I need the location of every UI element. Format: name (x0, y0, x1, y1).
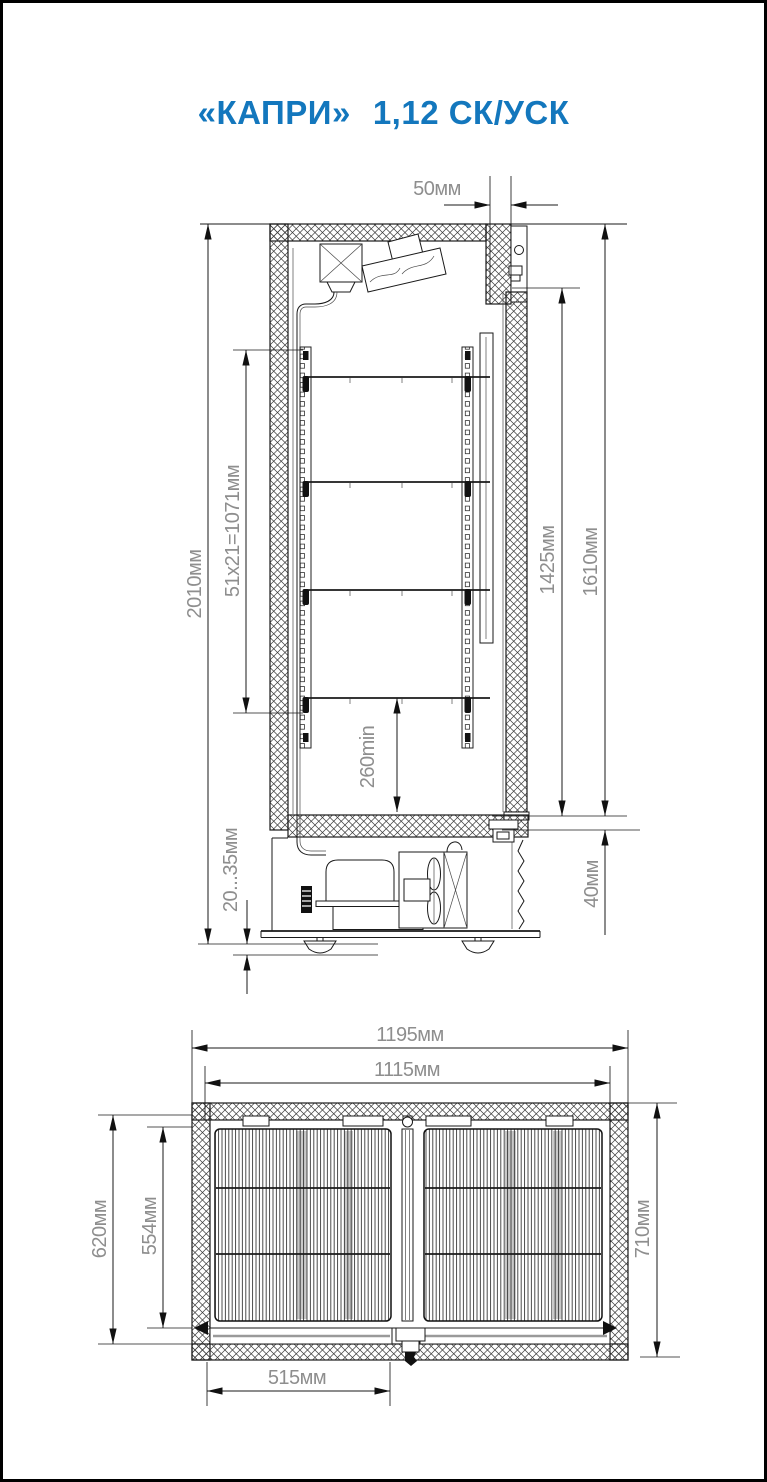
dim-label-1425mm: 1425мм (537, 526, 559, 595)
dim-label-2010mm: 2010мм (184, 550, 206, 619)
door-glass-panel (480, 333, 493, 643)
door-section (506, 292, 527, 812)
right-side-wall (610, 1103, 628, 1360)
model-name: «КАПРИ» (198, 94, 351, 132)
top-wall (270, 224, 486, 241)
dim-label-260min: 260min (357, 726, 379, 789)
technical-drawing: 50мм 2010мм 51x21=1071мм (0, 0, 767, 1482)
adjustable-feet (304, 938, 494, 954)
evaporator-bracket (327, 282, 355, 292)
bracket-tab (546, 1116, 573, 1126)
compressor (326, 860, 394, 901)
hinge-pin (511, 275, 520, 281)
wire-shelf-right (424, 1129, 602, 1321)
condenser-pipe (447, 842, 462, 852)
drawing-sheet: «КАПРИ» 1,12 СК/УСК (0, 0, 767, 1482)
dim-shelf-clearance: 260min (357, 698, 397, 812)
model-variant: 1,12 СК/УСК (373, 94, 570, 132)
wire-shelf-left (215, 1129, 391, 1321)
dim-label-1071mm: 51x21=1071мм (222, 465, 244, 597)
dim-overall-depth: 710мм (628, 1103, 680, 1357)
hinge-plan (403, 1117, 413, 1127)
dim-label-620mm: 620мм (89, 1200, 111, 1258)
rail-front (462, 347, 473, 748)
side-section-drawing: 50мм 2010мм 51x21=1071мм (184, 176, 640, 994)
condenser-fins (301, 886, 312, 913)
dim-label-515mm: 515мм (268, 1367, 326, 1389)
lock-housing (396, 1328, 425, 1341)
dim-label-1610mm: 1610мм (580, 528, 602, 597)
dim-shelf-depth: 554мм (139, 1127, 192, 1328)
dim-label-710mm: 710мм (632, 1200, 654, 1258)
bracket-tab (243, 1116, 269, 1126)
louver-panel (518, 840, 524, 929)
dim-label-1195mm: 1195мм (376, 1024, 444, 1046)
foot-left (304, 941, 336, 953)
dim-overall-height: 2010мм (184, 224, 208, 944)
top-plan-drawing: 1195мм 1115мм 620мм (89, 1024, 680, 1406)
left-wall (270, 224, 288, 830)
dim-door-leaf-width: 515мм (207, 1362, 390, 1406)
foot-right (462, 941, 494, 953)
center-mullion (402, 1129, 413, 1321)
machine-compartment (261, 820, 540, 938)
dim-label-554mm: 554мм (139, 1197, 161, 1255)
dim-label-20-35mm: 20...35мм (220, 828, 242, 912)
bracket-tab (343, 1116, 383, 1126)
bracket-tab (426, 1116, 471, 1126)
door-lock-top (489, 820, 518, 829)
lock-cylinder (402, 1341, 419, 1352)
dim-label-40mm: 40мм (581, 860, 603, 908)
hinge-panel (511, 226, 527, 302)
dim-rail-pitch: 51x21=1071мм (222, 350, 303, 713)
rail-back (300, 347, 311, 748)
dim-label-1115mm: 1115мм (374, 1059, 440, 1081)
fan-motor (404, 879, 430, 901)
page-title: «КАПРИ» 1,12 СК/УСК (0, 94, 767, 132)
shelf-rails (300, 347, 473, 748)
dim-label-50mm: 50мм (413, 178, 461, 200)
